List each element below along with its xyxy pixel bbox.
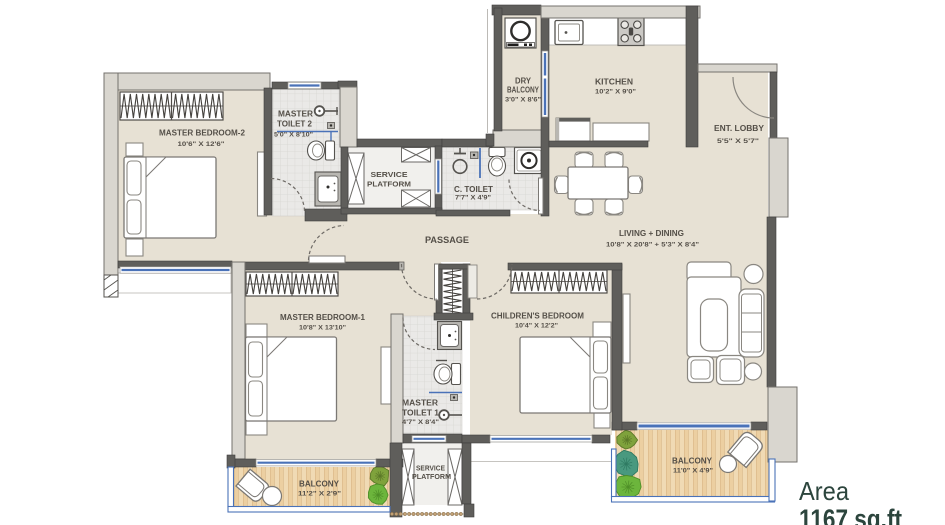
svg-text:BALCONY: BALCONY — [507, 86, 540, 95]
svg-text:MASTER: MASTER — [278, 110, 313, 119]
svg-text:PLATFORM: PLATFORM — [367, 180, 411, 189]
svg-text:4'7" X 8'4": 4'7" X 8'4" — [402, 419, 439, 426]
svg-text:CHILDREN'S BEDROOM: CHILDREN'S BEDROOM — [491, 311, 584, 320]
svg-text:MASTER BEDROOM-1: MASTER BEDROOM-1 — [280, 313, 366, 322]
svg-text:LIVING + DINING: LIVING + DINING — [619, 229, 684, 238]
svg-text:10'8" X 13'10": 10'8" X 13'10" — [299, 325, 346, 332]
svg-text:KITCHEN: KITCHEN — [595, 78, 633, 87]
svg-text:5'5" X 5'7": 5'5" X 5'7" — [717, 138, 759, 145]
svg-text:Area: Area — [799, 476, 849, 506]
svg-text:11'0" X 4'9": 11'0" X 4'9" — [673, 468, 713, 475]
svg-text:5'0" X 8'10": 5'0" X 8'10" — [274, 132, 313, 139]
svg-text:ENT. LOBBY: ENT. LOBBY — [714, 124, 765, 133]
svg-text:TOILET 2: TOILET 2 — [277, 120, 313, 129]
svg-text:MASTER BEDROOM-2: MASTER BEDROOM-2 — [159, 129, 246, 138]
svg-text:10'4" X 12'2": 10'4" X 12'2" — [515, 323, 558, 330]
svg-text:C. TOILET: C. TOILET — [454, 185, 493, 194]
svg-text:10'8" X 20'8" + 5'3" X 8'4": 10'8" X 20'8" + 5'3" X 8'4" — [606, 242, 699, 249]
svg-text:7'7" X 4'9": 7'7" X 4'9" — [455, 195, 491, 202]
svg-text:DRY: DRY — [515, 77, 532, 86]
svg-text:BALCONY: BALCONY — [672, 457, 713, 466]
svg-text:BALCONY: BALCONY — [299, 480, 340, 489]
svg-text:10'6" X 12'6": 10'6" X 12'6" — [178, 141, 225, 148]
svg-text:PASSAGE: PASSAGE — [425, 235, 469, 245]
svg-text:SERVICE: SERVICE — [371, 170, 408, 179]
svg-text:TOILET 1: TOILET 1 — [402, 409, 440, 418]
svg-text:PLATFORM: PLATFORM — [412, 472, 451, 481]
svg-text:3'0" X 8'6": 3'0" X 8'6" — [505, 97, 541, 104]
svg-text:10'2" X 9'0": 10'2" X 9'0" — [595, 89, 636, 96]
svg-text:1167 sq.ft: 1167 sq.ft — [799, 504, 902, 525]
svg-text:MASTER: MASTER — [402, 399, 438, 408]
svg-text:11'2" X 2'9": 11'2" X 2'9" — [298, 491, 341, 498]
